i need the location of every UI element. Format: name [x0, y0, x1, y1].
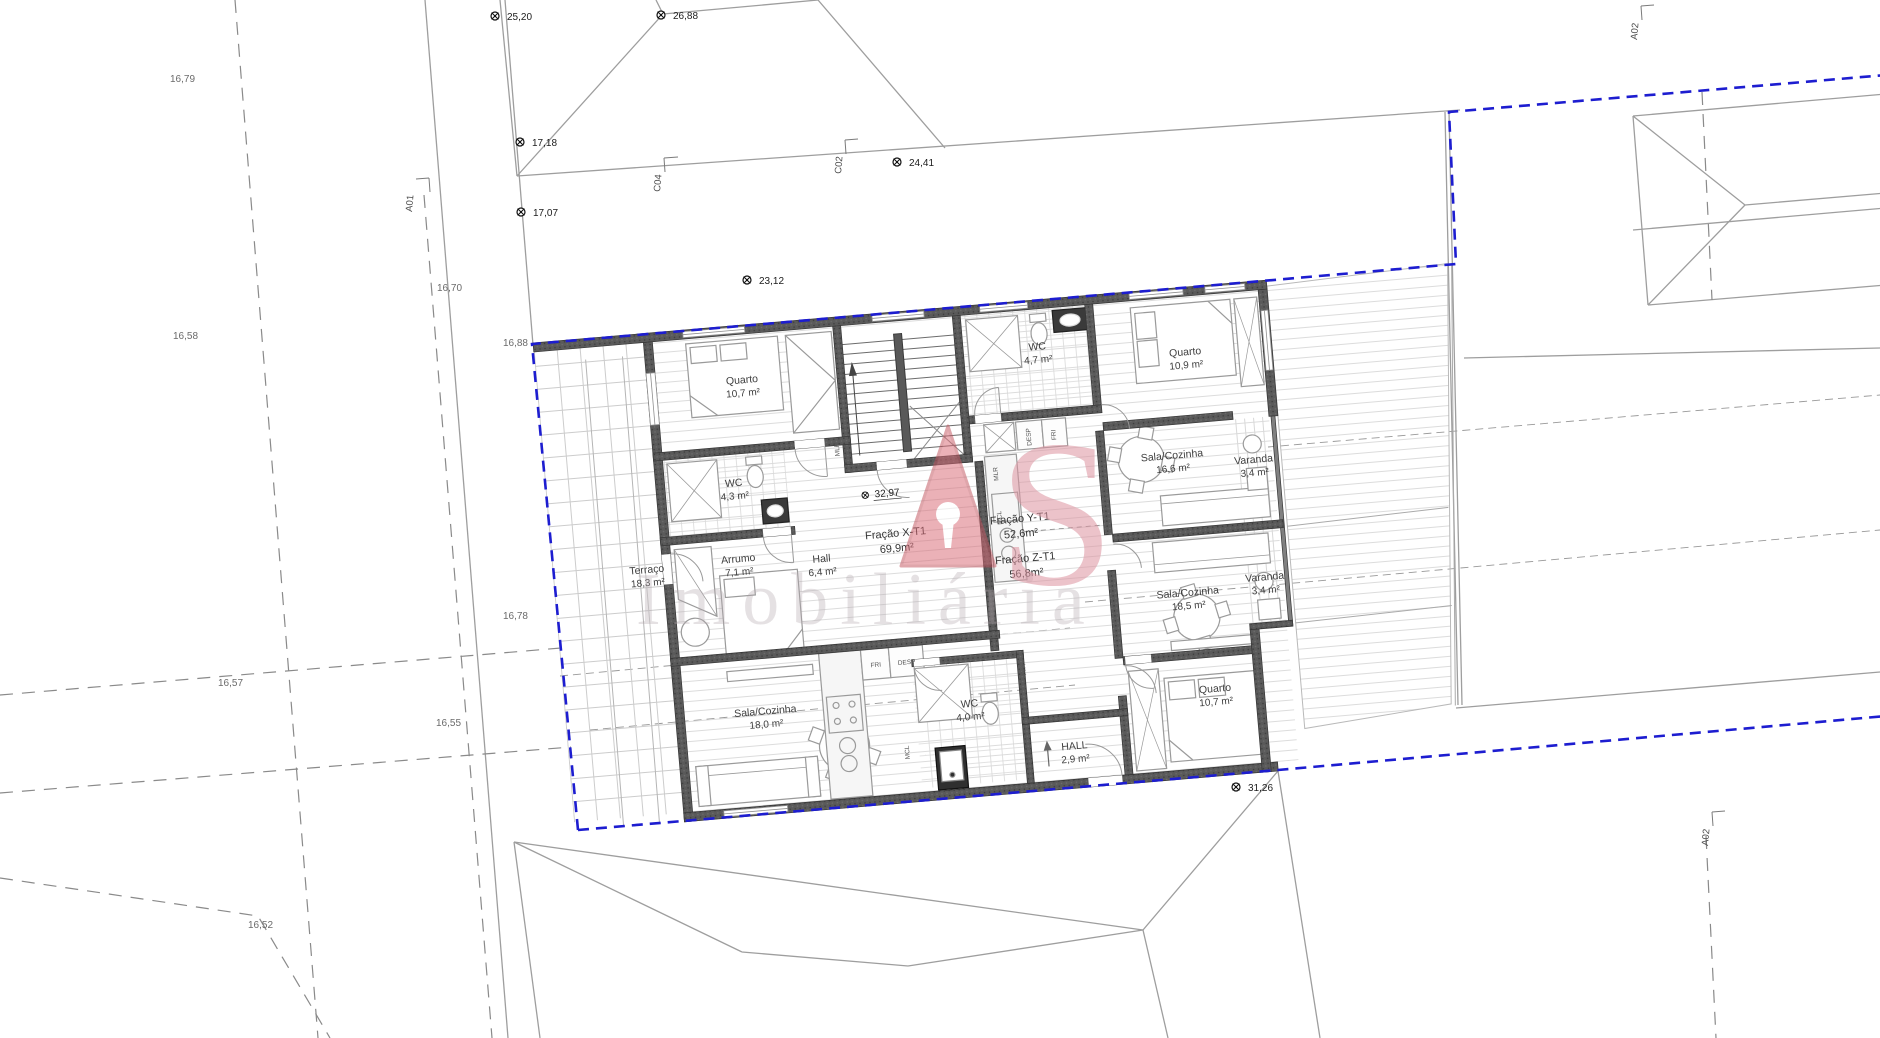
svg-text:16,88: 16,88 — [503, 338, 528, 349]
axis-marker-c04: C04 — [652, 157, 678, 192]
survey-marker-2688: 26,88 — [657, 11, 698, 22]
svg-text:31,26: 31,26 — [1248, 783, 1273, 794]
floor-plan-canvas: Terraço 18,3 m² Quarto 10,7 m² WC 4,3 m²… — [0, 0, 1880, 1038]
svg-text:16,79: 16,79 — [170, 74, 195, 85]
elevation-labels: 16,79 16,58 16,70 16,88 16,78 16,57 16,5… — [170, 74, 528, 931]
svg-text:A02: A02 — [1629, 22, 1641, 40]
svg-text:16,78: 16,78 — [503, 611, 528, 622]
survey-marker-2520: 25,20 — [491, 12, 532, 23]
svg-text:16,57: 16,57 — [218, 678, 243, 689]
axis-marker-a01: A01 — [404, 178, 430, 212]
svg-text:WC: WC — [1028, 340, 1047, 353]
svg-text:25,20: 25,20 — [507, 12, 532, 23]
svg-text:24,41: 24,41 — [909, 158, 934, 169]
svg-text:17,18: 17,18 — [532, 138, 557, 149]
svg-text:MCL: MCL — [904, 745, 912, 760]
survey-marker-2441: 24,41 — [893, 158, 934, 169]
svg-text:HALL: HALL — [1061, 739, 1088, 753]
svg-text:C02: C02 — [833, 156, 845, 174]
axis-marker-c02: C02 — [833, 139, 858, 174]
survey-marker-2312: 23,12 — [743, 276, 784, 287]
axis-marker-a02-bottom: A02 — [1700, 811, 1725, 846]
svg-text:16,70: 16,70 — [437, 283, 462, 294]
watermark-logo-s: S — [998, 398, 1115, 630]
svg-text:23,12: 23,12 — [759, 276, 784, 287]
svg-text:MLR: MLR — [834, 442, 842, 457]
survey-marker-1718: 17,18 — [516, 138, 557, 149]
svg-text:16,58: 16,58 — [173, 331, 198, 342]
svg-text:26,88: 26,88 — [673, 11, 698, 22]
svg-text:WC: WC — [724, 477, 743, 490]
survey-marker-3126: 31,26 — [1232, 783, 1273, 794]
svg-text:A01: A01 — [404, 194, 416, 212]
axis-marker-a02-top: A02 — [1629, 5, 1654, 40]
svg-text:16,55: 16,55 — [436, 718, 461, 729]
svg-text:16,52: 16,52 — [248, 920, 273, 931]
svg-text:A02: A02 — [1700, 828, 1712, 846]
svg-text:FRI: FRI — [870, 661, 881, 669]
svg-text:17,07: 17,07 — [533, 208, 558, 219]
svg-text:C04: C04 — [652, 174, 664, 192]
floor-plan-page: Terraço 18,3 m² Quarto 10,7 m² WC 4,3 m²… — [0, 0, 1880, 1038]
svg-text:WC: WC — [960, 697, 979, 710]
svg-text:TVA: TVA — [1020, 663, 1028, 676]
